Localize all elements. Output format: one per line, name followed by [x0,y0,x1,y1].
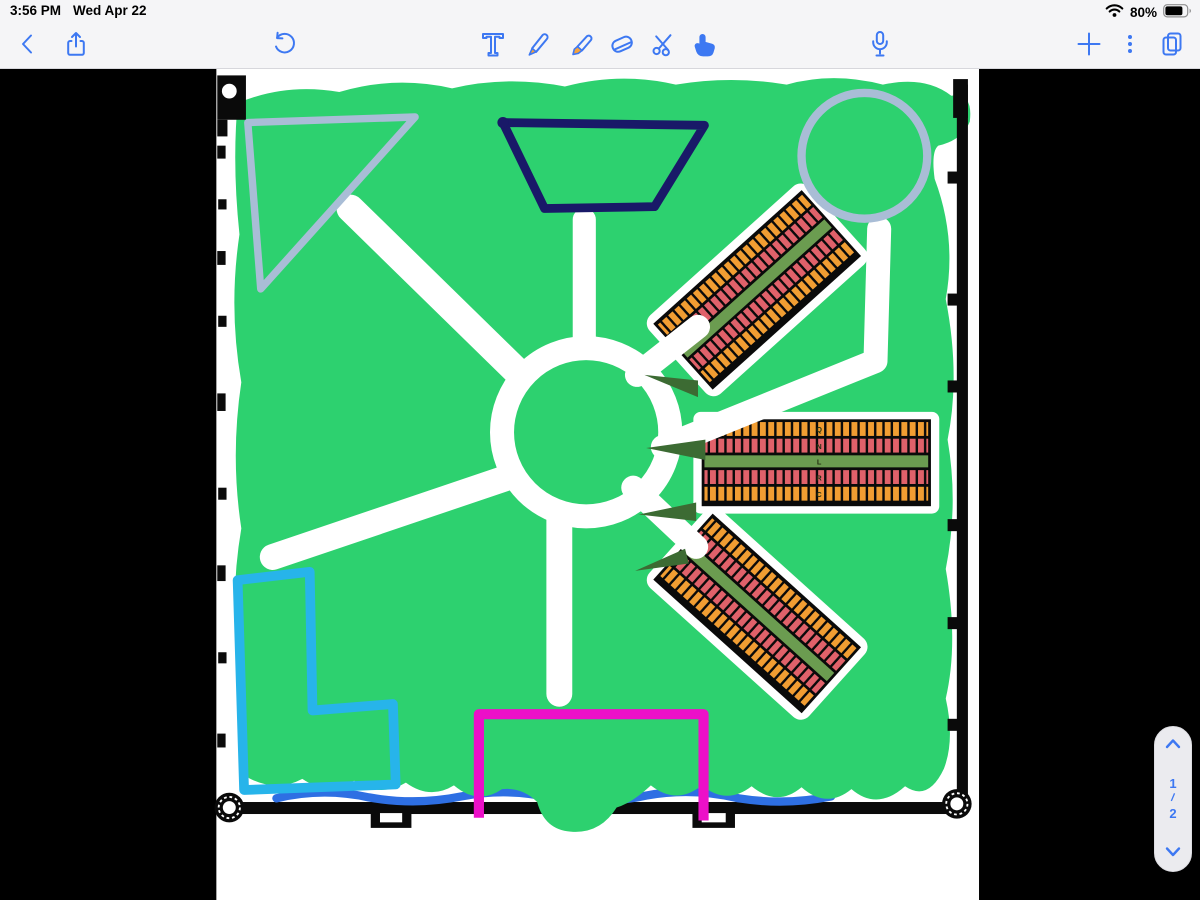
svg-text:R: R [816,473,822,482]
chevron-down-icon [1164,846,1182,861]
eraser-icon [607,29,637,59]
highlighter-icon [566,29,596,59]
more-button[interactable] [1114,26,1146,62]
drawing-canvas[interactable]: Q N L R C [0,68,1200,900]
page-current: 1 [1169,776,1176,792]
status-bar: 3:56 PM Wed Apr 22 80% [0,0,1200,24]
page-navigator: 1 / 2 [1154,726,1192,872]
record-audio-button[interactable] [864,26,896,62]
svg-text:L: L [817,458,822,467]
microphone-icon [866,29,894,59]
finger-select-icon [690,29,720,59]
battery-icon [1163,4,1192,21]
page-up-button[interactable] [1164,737,1182,753]
status-date: Wed Apr 22 [73,3,147,18]
finger-select-button[interactable] [689,26,721,62]
highlighter-tool-button[interactable] [565,26,597,62]
chevron-left-icon [14,30,42,58]
add-page-button[interactable] [1073,26,1105,62]
text-tool-icon [478,29,508,59]
scissors-tool-button[interactable] [647,26,679,62]
eraser-tool-button[interactable] [606,26,638,62]
battery-percent: 80% [1130,5,1157,20]
page-total: 2 [1169,806,1176,822]
wifi-icon [1105,3,1124,21]
svg-text:C: C [816,490,822,499]
share-button[interactable] [60,26,92,62]
chevron-up-icon [1164,738,1182,753]
svg-text:N: N [816,442,821,451]
status-time: 3:56 PM [10,3,61,18]
app-chrome: 3:56 PM Wed Apr 22 80% [0,0,1200,69]
svg-text:Q: Q [816,425,822,434]
page-overview-button[interactable] [1156,26,1188,62]
pages-icon [1157,29,1187,59]
toolbar [0,24,1200,67]
pen-tool-button[interactable] [521,26,553,62]
page-down-button[interactable] [1164,845,1182,861]
page-separator: / [1170,792,1176,806]
undo-button[interactable] [268,26,300,62]
scissors-icon [648,29,678,59]
ellipsis-vertical-icon [1116,30,1144,58]
map-drawing: Q N L R C [0,68,1200,900]
undo-icon [270,30,298,58]
back-button[interactable] [12,26,44,62]
text-tool-button[interactable] [477,26,509,62]
share-icon [62,30,90,58]
pen-icon [522,29,552,59]
plus-icon [1074,29,1104,59]
